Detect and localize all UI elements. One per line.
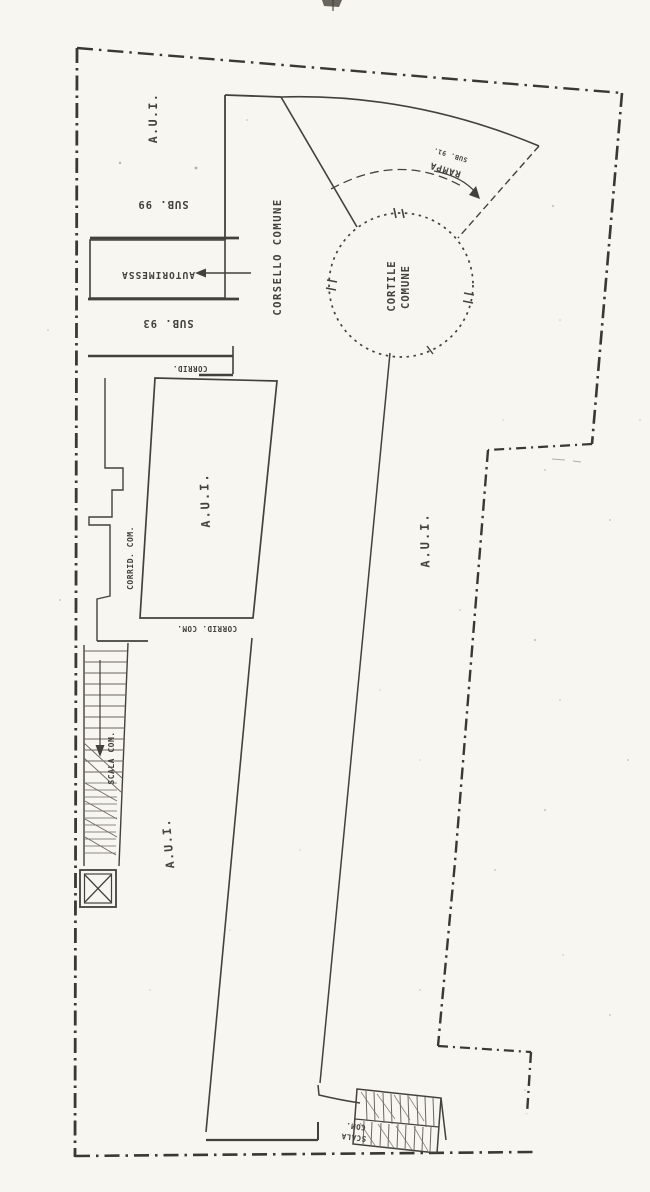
label-aui-top-left: A.U.I. xyxy=(146,93,160,144)
speck-dot xyxy=(552,205,554,207)
bottom-stair-block xyxy=(318,1085,446,1153)
faint-survey-marks xyxy=(552,459,581,462)
speck-dot xyxy=(627,759,629,761)
boundary-right-lower xyxy=(527,1052,531,1114)
speck-dot xyxy=(47,329,49,331)
boundary-left xyxy=(75,48,77,1157)
boundary-bottom xyxy=(75,1152,533,1156)
label-corsello-comune: CORSELLO COMUNE xyxy=(272,198,284,315)
label-scala-com-left: SCALA COM. xyxy=(107,731,116,784)
speck-dot xyxy=(419,759,421,761)
label-corrid-top: CORRID. xyxy=(172,364,207,373)
ramp-and-courtyard xyxy=(281,97,539,357)
speck-dot xyxy=(524,1089,526,1091)
label-aui-right: A.U.I. xyxy=(418,512,433,568)
speck-dot xyxy=(609,519,611,521)
autorimessa-entry-arrow-icon xyxy=(195,269,206,278)
boundary-top xyxy=(77,48,622,93)
speck-dot xyxy=(379,689,381,691)
speck-dot xyxy=(534,639,536,641)
middle-building xyxy=(89,378,277,641)
speck-dot xyxy=(195,167,198,170)
ramp-fan-top-curve xyxy=(281,97,539,146)
scan-edge-mark-shape xyxy=(322,0,342,7)
speck-dot xyxy=(639,419,641,421)
scan-speckles xyxy=(47,119,641,1091)
label-sub-99: SUB. 99 xyxy=(137,198,188,210)
speck-dot xyxy=(544,469,546,471)
ramp-fan-right-edge xyxy=(458,146,539,238)
speck-dot xyxy=(149,989,151,991)
west-corridor-jogged-wall xyxy=(89,378,123,641)
bottom-stair-approach-wall xyxy=(318,1085,360,1103)
lowerleft-right-slant-wall xyxy=(206,638,252,1132)
boundary-right-middle xyxy=(438,450,488,1046)
elevator-x-icon xyxy=(85,875,111,902)
speck-dot xyxy=(119,162,121,164)
speck-dot xyxy=(229,929,231,931)
speck-dot xyxy=(59,599,61,601)
lower-left-building xyxy=(80,638,318,1140)
circle-tick-bottom xyxy=(427,346,433,354)
label-rampa-sub: SUB. 91. xyxy=(432,146,468,164)
label-aui-lower-left: A.U.I. xyxy=(159,818,177,870)
boundary-jog-lower xyxy=(438,1046,531,1052)
stairwell-right-wall xyxy=(119,643,128,866)
speck-dot xyxy=(559,319,561,321)
circle-tick-left xyxy=(326,280,337,290)
label-scala-bottom-com: COM. xyxy=(345,1121,366,1132)
stair-lower-crosshatch xyxy=(85,783,117,855)
corsello-right-slant-wall xyxy=(320,353,390,1083)
circle-tick-right xyxy=(463,293,474,303)
label-cortile-line1: CORTILE xyxy=(386,260,398,311)
upper-left-block xyxy=(88,95,281,375)
bottom-stair-right-wall xyxy=(441,1098,446,1140)
speck-dot xyxy=(544,809,546,811)
label-scala-bottom-scala: SCALA xyxy=(341,1131,367,1143)
label-aui-middle: A.U.I. xyxy=(197,472,213,528)
speck-dot xyxy=(459,609,461,611)
speck-dot xyxy=(559,699,561,701)
ramp-fan-left-edge xyxy=(281,97,357,227)
speck-dot xyxy=(419,989,421,991)
label-corrid-com-bottom: CORRID. COM. xyxy=(177,624,237,633)
floor-plan-drawing: A.U.I. SUB. 99 AUTORIMESSA SUB. 93 CORRI… xyxy=(0,0,650,1192)
speck-dot xyxy=(609,1014,611,1016)
speck-dot xyxy=(246,119,248,121)
boundary-right-upper xyxy=(592,93,622,444)
speck-dot xyxy=(502,419,504,421)
speck-dot xyxy=(299,849,301,851)
stair-upper-steps xyxy=(84,651,127,772)
label-corrid-com-left: CORRID. COM. xyxy=(126,526,135,590)
wall-topleft-stub xyxy=(225,95,281,97)
scan-edge-mark xyxy=(322,0,342,11)
property-boundary xyxy=(75,48,622,1157)
autorimessa-room-outline xyxy=(90,240,225,298)
stair-lower-steps xyxy=(85,783,117,853)
speck-dot xyxy=(494,869,496,871)
label-rampa: RAMPA xyxy=(429,159,463,178)
scanned-floor-plan-page: A.U.I. SUB. 99 AUTORIMESSA SUB. 93 CORRI… xyxy=(0,0,650,1192)
label-sub-93: SUB. 93 xyxy=(142,317,193,329)
label-autorimessa: AUTORIMESSA xyxy=(121,269,195,280)
boundary-jog-upper xyxy=(488,444,592,450)
speck-dot xyxy=(562,954,564,956)
label-cortile-line2: COMUNE xyxy=(400,265,412,309)
